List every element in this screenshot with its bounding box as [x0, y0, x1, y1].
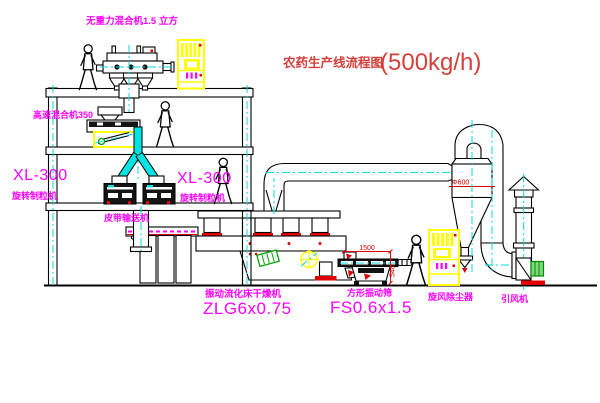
dimension-screen-height: 548: [390, 265, 397, 277]
label-screen-name: 方形振动筛: [347, 287, 392, 298]
control-cabinet-2: [429, 230, 459, 285]
cad-drawing: 农药生产线流程图 (500kg/h) 无重力混合机1.5 立方 高速混合机350…: [0, 0, 600, 403]
label-granulator-left-name: 旋转制粒机: [11, 190, 57, 201]
granulator-right: [143, 176, 175, 204]
dimension-screen-length: 1500: [359, 245, 375, 252]
page-title: 农药生产线流程图: [282, 55, 383, 70]
label-granulator-left-model: XL-300: [13, 167, 68, 184]
granulator-left: [104, 176, 136, 204]
control-cabinet-1: [178, 40, 204, 89]
fluid-bed-dryer: [196, 211, 356, 281]
label-screen-model: FS0.6x1.5: [330, 298, 412, 317]
title-capacity: (500kg/h): [380, 49, 481, 76]
worker-figure-floor2: [156, 102, 173, 147]
worker-figure-roof: [79, 45, 96, 90]
dimension-cyclone: Φ600: [452, 180, 469, 187]
process-flow-diagram: 农药生产线流程图 (500kg/h) 无重力混合机1.5 立方 高速混合机350…: [0, 0, 600, 403]
label-high-speed-mixer: 高速混合机350: [33, 109, 93, 120]
label-dryer-model: ZLG6x0.75: [203, 299, 292, 318]
label-granulator-right-name: 旋转制粒机: [179, 192, 225, 203]
label-fan: 引风机: [501, 293, 528, 304]
label-belt-conveyor: 皮带输送机: [103, 212, 149, 223]
label-zero-gravity-mixer: 无重力混合机1.5 立方: [85, 15, 178, 27]
label-cyclone: 旋风除尘器: [427, 291, 474, 302]
label-granulator-right-model: XL-300: [177, 170, 232, 187]
exhaust-duct: [264, 164, 452, 215]
